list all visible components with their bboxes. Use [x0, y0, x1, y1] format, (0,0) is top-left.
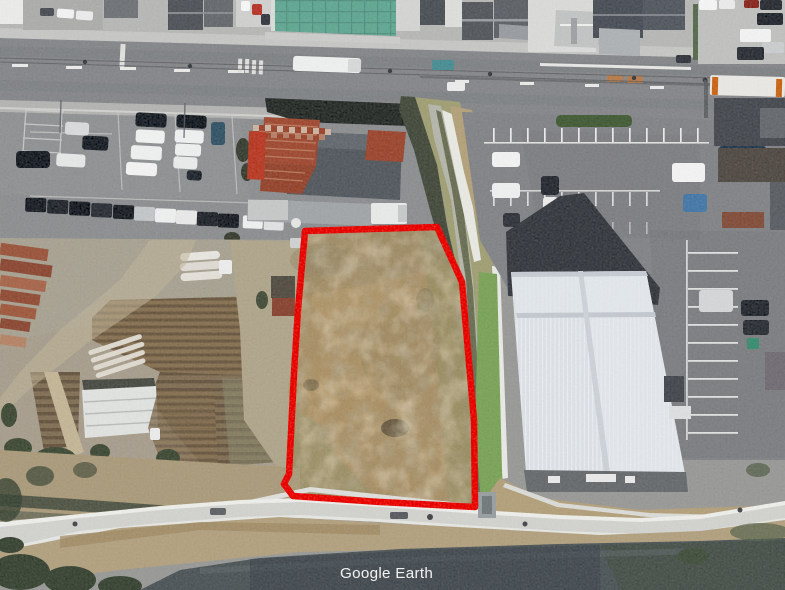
svg-text:Google Earth: Google Earth	[340, 565, 433, 582]
